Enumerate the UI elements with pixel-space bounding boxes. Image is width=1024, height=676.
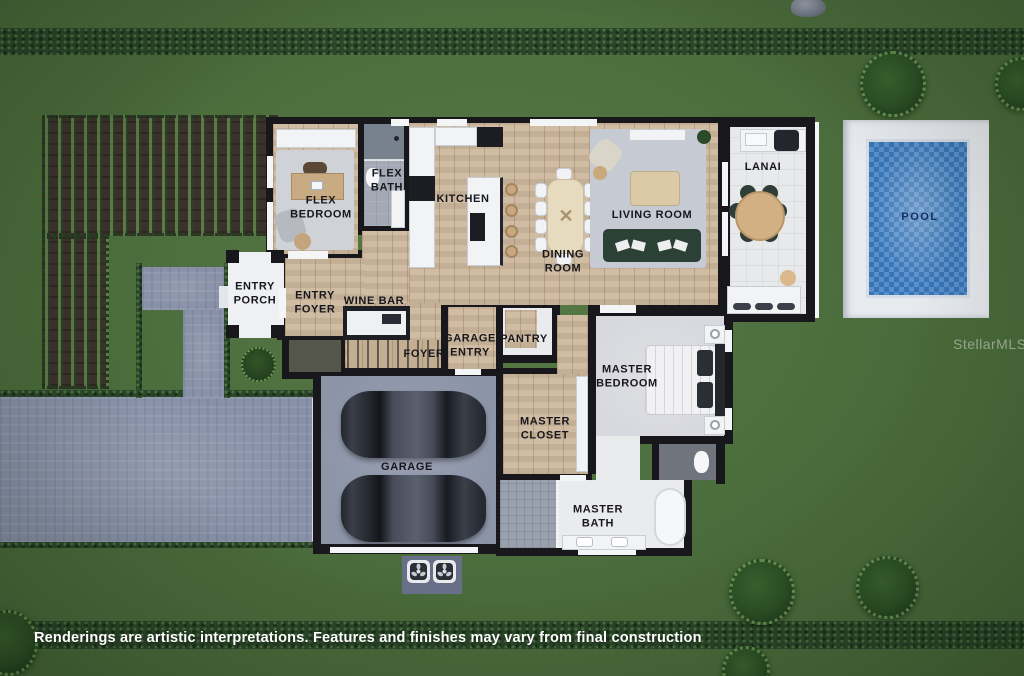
table-pedestal: ✕ <box>556 206 576 226</box>
laptop <box>311 181 323 190</box>
label-dining-room: DINING ROOM <box>536 248 590 277</box>
tree <box>860 51 926 117</box>
walkway-lower <box>183 310 224 398</box>
buffet-drawer <box>733 303 751 310</box>
wine-fridge <box>382 314 401 324</box>
lamp <box>710 420 720 430</box>
shower-glass <box>556 480 559 548</box>
wall <box>806 117 815 322</box>
bed-pillow <box>697 382 713 408</box>
window <box>578 550 636 555</box>
label-master-bath: MASTER BATH <box>569 503 627 532</box>
label-lanai: LANAI <box>745 160 782 174</box>
label-wine-bar: WINE BAR <box>344 294 404 308</box>
range <box>409 176 435 201</box>
watermark: StellarMLS <box>953 336 1024 352</box>
grill-icon <box>774 130 799 151</box>
ac-unit <box>407 560 430 583</box>
driveway-hedge-top-left <box>0 390 183 397</box>
window <box>530 119 597 126</box>
tree <box>856 556 919 619</box>
garage-entry-door <box>455 369 481 375</box>
label-entry-porch: ENTRY PORCH <box>230 280 280 309</box>
label-pool: POOL <box>901 210 938 224</box>
bed-pillow <box>697 350 713 376</box>
entry-bush <box>241 347 276 382</box>
console-table <box>629 129 686 141</box>
dining-chair <box>535 201 547 216</box>
loveseat <box>630 171 680 206</box>
wall <box>496 355 556 363</box>
sink <box>576 537 593 547</box>
wall <box>313 368 321 554</box>
utility-closet-floor <box>289 340 341 372</box>
outdoor-sink <box>745 133 767 146</box>
walkway-hedge-left <box>136 263 142 398</box>
patio-table <box>735 191 785 241</box>
window <box>267 202 273 250</box>
wardrobe <box>276 129 356 148</box>
label-foyer: FOYER <box>404 347 445 361</box>
kitchen-counter-top <box>435 127 477 146</box>
driveway-hedge-bottom <box>0 542 316 548</box>
label-master-closet: MASTER CLOSET <box>515 415 575 444</box>
porch-post <box>226 250 239 263</box>
double-vanity <box>562 535 646 550</box>
disclaimer-text: Renderings are artistic interpretations.… <box>34 630 702 646</box>
ac-fan-icon <box>407 560 430 583</box>
bar-stool <box>505 245 518 258</box>
bar-stool <box>505 204 518 217</box>
bar-stool <box>505 183 518 196</box>
label-flex-bath: FLEX BATH <box>367 167 407 196</box>
window <box>391 119 409 126</box>
shower-glass <box>364 159 404 161</box>
tree <box>729 559 795 625</box>
lanai-screen <box>815 122 819 318</box>
porch-post <box>226 325 239 338</box>
label-entry-foyer: ENTRY FOYER <box>291 289 339 318</box>
buffet-drawer <box>755 303 773 310</box>
label-flex-bedroom: FLEX BEDROOM <box>285 194 357 223</box>
label-pantry: PANTRY <box>500 332 548 346</box>
master-shower <box>500 480 556 548</box>
window-seat <box>288 251 328 259</box>
ac-fan-icon <box>433 560 456 583</box>
shower-drain <box>394 136 399 141</box>
porch-step <box>219 286 228 308</box>
slider-door <box>722 212 728 256</box>
suite-corridor-floor <box>557 315 588 375</box>
label-master-bedroom: MASTER BEDROOM <box>589 363 665 392</box>
slider-door <box>722 162 728 206</box>
label-garage: GARAGE <box>381 460 433 474</box>
wall <box>652 440 659 480</box>
closet-shelving <box>576 376 588 472</box>
ac-unit <box>433 560 456 583</box>
porch-post <box>271 250 284 263</box>
toilet <box>694 451 709 473</box>
walkway-upper <box>142 267 224 310</box>
hedge-row-top <box>0 28 1024 55</box>
plant <box>697 130 711 144</box>
car <box>341 475 486 542</box>
porch-post <box>271 325 284 338</box>
side-table <box>593 166 607 180</box>
driveway <box>0 396 316 543</box>
garden-bed-horizontal <box>42 115 278 236</box>
bath-door <box>560 475 586 481</box>
bar-stool <box>505 225 518 238</box>
label-living-room: LIVING ROOM <box>612 208 693 222</box>
window <box>437 119 467 126</box>
bathtub <box>654 488 686 546</box>
bedroom-door <box>600 305 636 313</box>
window <box>725 330 732 352</box>
bath-anteroom-floor <box>596 436 640 482</box>
refrigerator <box>477 127 503 147</box>
bath-vanity <box>391 190 405 228</box>
dining-chair <box>535 183 547 198</box>
label-garage-entry: GARAGE ENTRY <box>443 332 497 361</box>
cooktop <box>470 213 485 241</box>
wall <box>718 314 815 322</box>
front-door <box>279 288 286 318</box>
sink <box>611 537 628 547</box>
dining-chair <box>535 219 547 234</box>
shower <box>364 124 404 160</box>
buffet-drawer <box>777 303 795 310</box>
car <box>341 391 486 458</box>
window <box>725 408 732 430</box>
ottoman <box>780 270 796 286</box>
floor-plan-rendering: ✕ FLEX BEDROO <box>0 0 1024 676</box>
label-kitchen: KITCHEN <box>436 192 489 206</box>
window <box>267 156 273 188</box>
driveway-hedge-top-right <box>224 390 316 397</box>
garden-bed-vertical <box>42 236 109 389</box>
headboard <box>715 341 725 419</box>
lamp <box>710 329 720 339</box>
garage-door <box>330 547 478 553</box>
pouf <box>294 233 311 250</box>
